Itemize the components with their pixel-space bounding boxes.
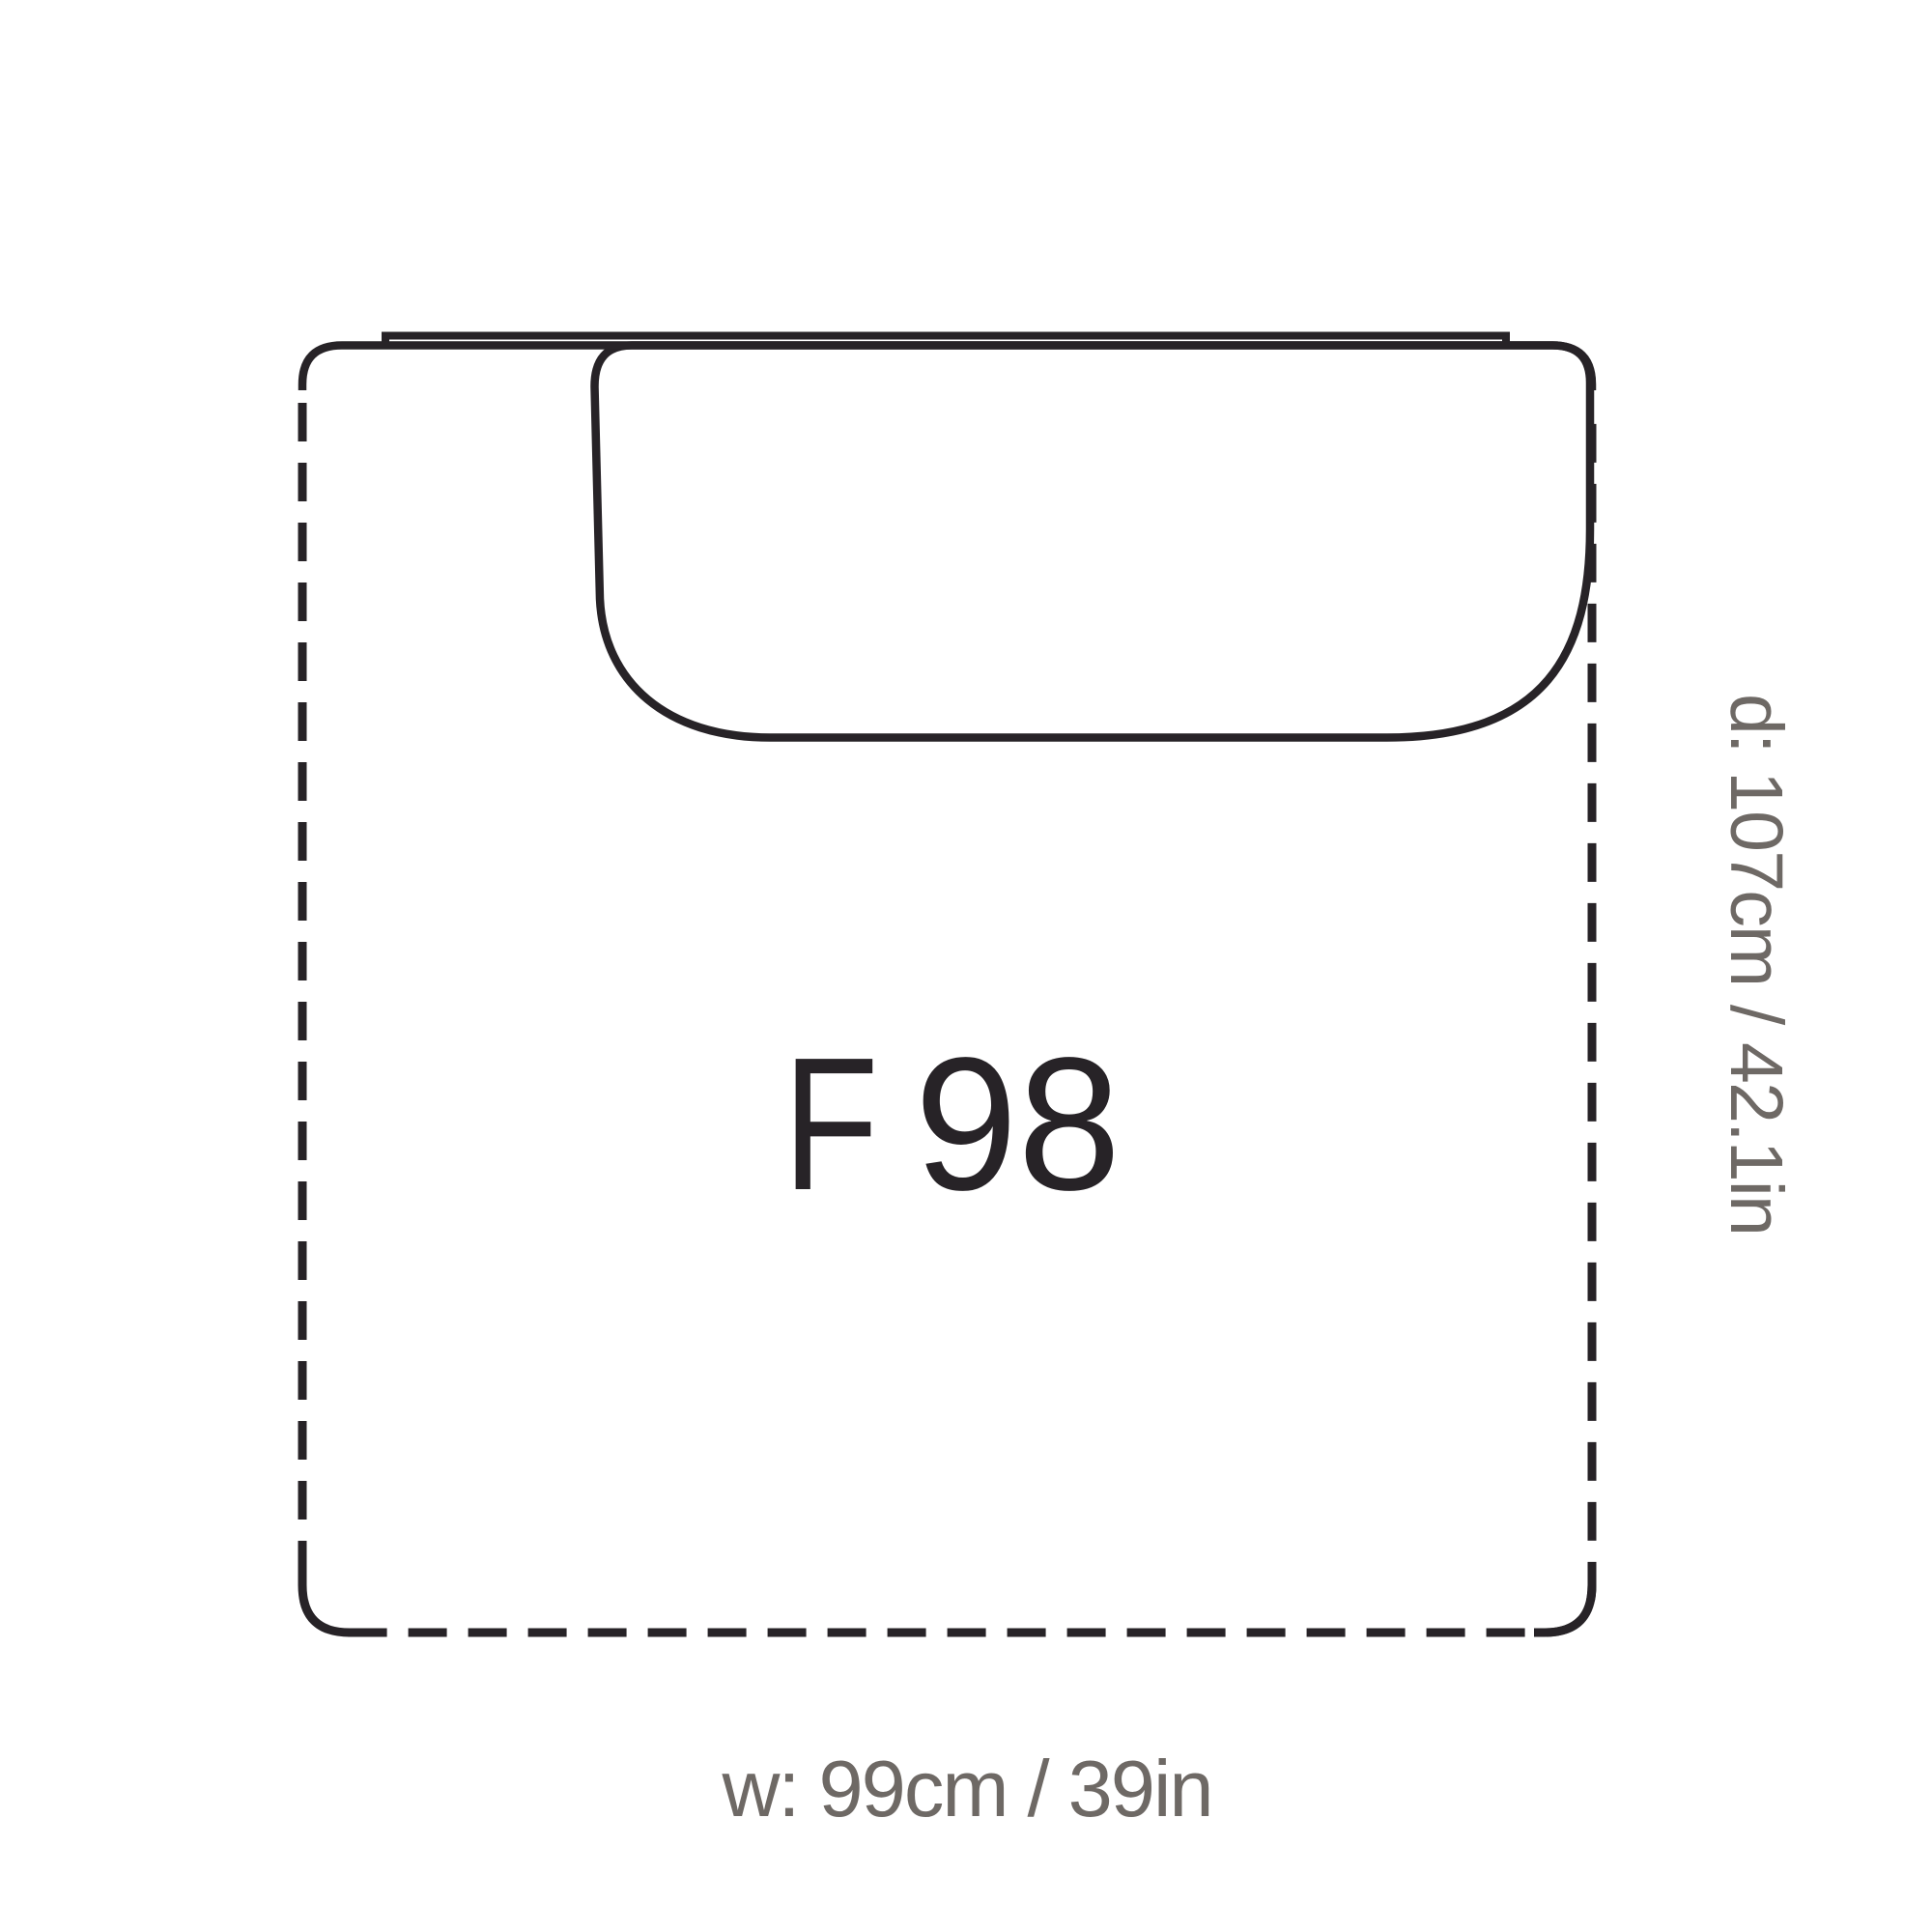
svg-text:98: 98 <box>915 1018 1122 1230</box>
svg-text:d: 107cm / 42.1in: d: 107cm / 42.1in <box>1715 694 1798 1235</box>
svg-text:F: F <box>782 1019 878 1231</box>
svg-text:w: 99cm / 39in: w: 99cm / 39in <box>721 1744 1211 1833</box>
